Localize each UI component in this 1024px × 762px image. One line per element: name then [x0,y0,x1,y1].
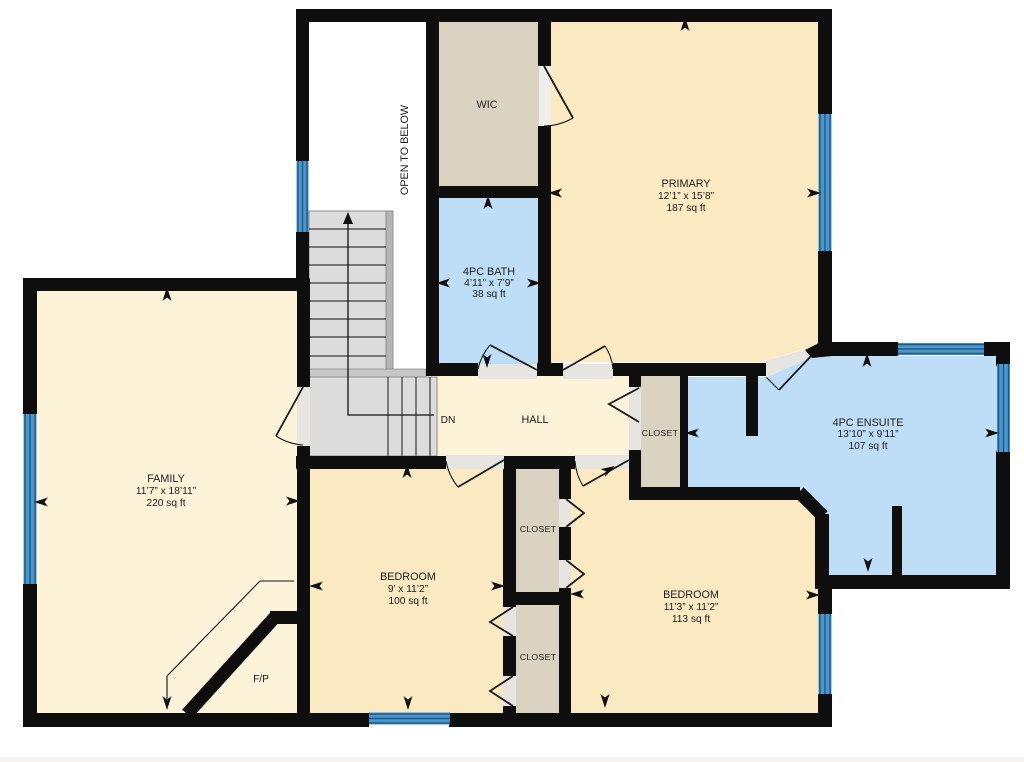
svg-text:13’10” x 9’11”: 13’10” x 9’11” [838,429,900,440]
svg-text:CLOSET: CLOSET [642,428,679,438]
svg-text:220 sq ft: 220 sq ft [146,498,185,509]
svg-text:11’7” x 18’11”: 11’7” x 18’11” [136,486,197,497]
svg-text:187 sq ft: 187 sq ft [666,203,705,214]
svg-text:113 sq ft: 113 sq ft [672,614,710,625]
svg-text:WIC: WIC [477,99,498,111]
svg-text:4PC ENSUITE: 4PC ENSUITE [833,417,904,429]
svg-text:DN: DN [441,415,456,426]
svg-text:4’11” x 7’9”: 4’11” x 7’9” [464,278,514,289]
svg-text:100 sq ft: 100 sq ft [388,596,427,607]
svg-text:9’ x 11’2”: 9’ x 11’2” [388,584,429,595]
svg-text:CLOSET: CLOSET [520,652,557,662]
svg-text:4PC BATH: 4PC BATH [463,266,515,278]
svg-text:BEDROOM: BEDROOM [380,571,436,583]
svg-text:38 sq ft: 38 sq ft [472,289,506,300]
svg-text:107 sq ft: 107 sq ft [848,441,887,452]
svg-text:HALL: HALL [521,414,548,426]
svg-text:OPEN TO BELOW: OPEN TO BELOW [399,104,411,195]
svg-text:12’1” x 15’8”: 12’1” x 15’8” [658,191,715,202]
svg-text:F/P: F/P [253,674,269,685]
svg-text:11’3” x 11’2”: 11’3” x 11’2” [664,602,719,613]
svg-text:PRIMARY: PRIMARY [662,178,711,190]
svg-text:FAMILY: FAMILY [147,473,185,485]
svg-text:CLOSET: CLOSET [520,524,557,534]
svg-text:BEDROOM: BEDROOM [663,589,719,601]
